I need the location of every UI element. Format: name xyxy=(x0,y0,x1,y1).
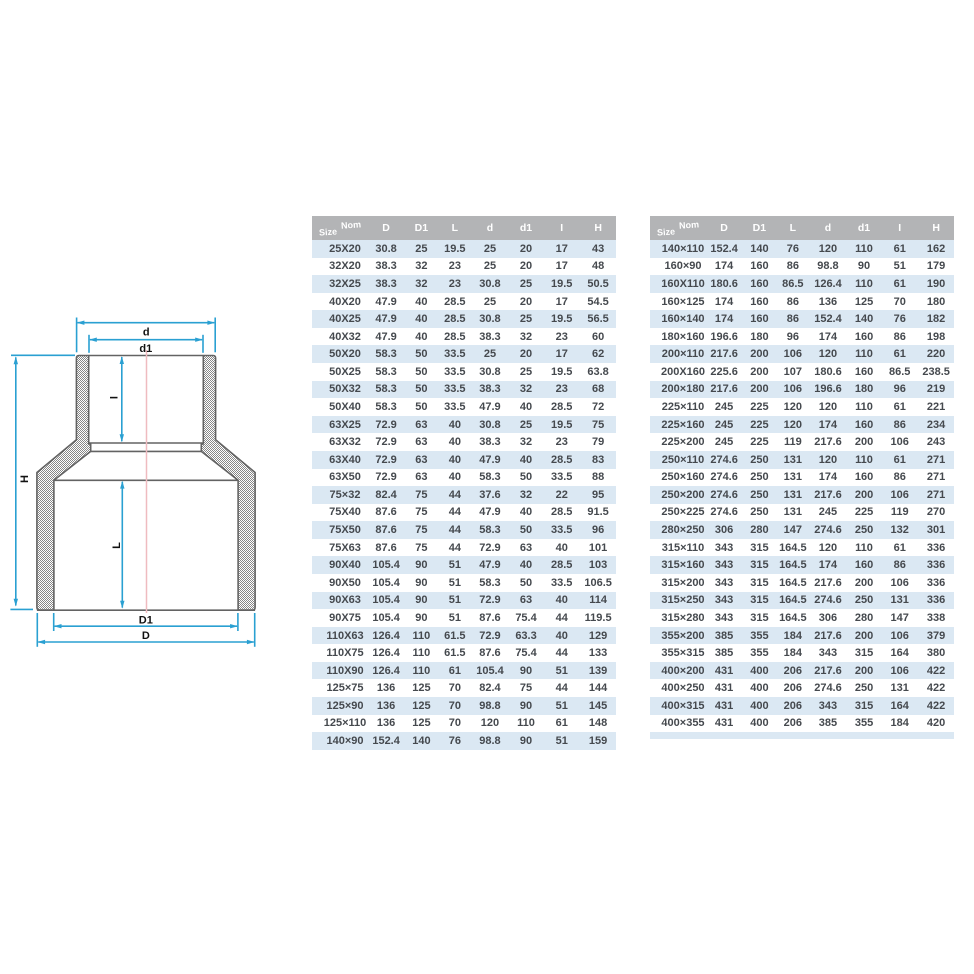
svg-text:D1: D1 xyxy=(139,615,153,627)
svg-text:d: d xyxy=(143,327,150,339)
svg-text:I: I xyxy=(109,396,121,399)
svg-text:H: H xyxy=(19,475,31,483)
svg-text:L: L xyxy=(111,542,123,549)
svg-text:D: D xyxy=(142,630,150,642)
svg-text:d1: d1 xyxy=(139,343,152,355)
